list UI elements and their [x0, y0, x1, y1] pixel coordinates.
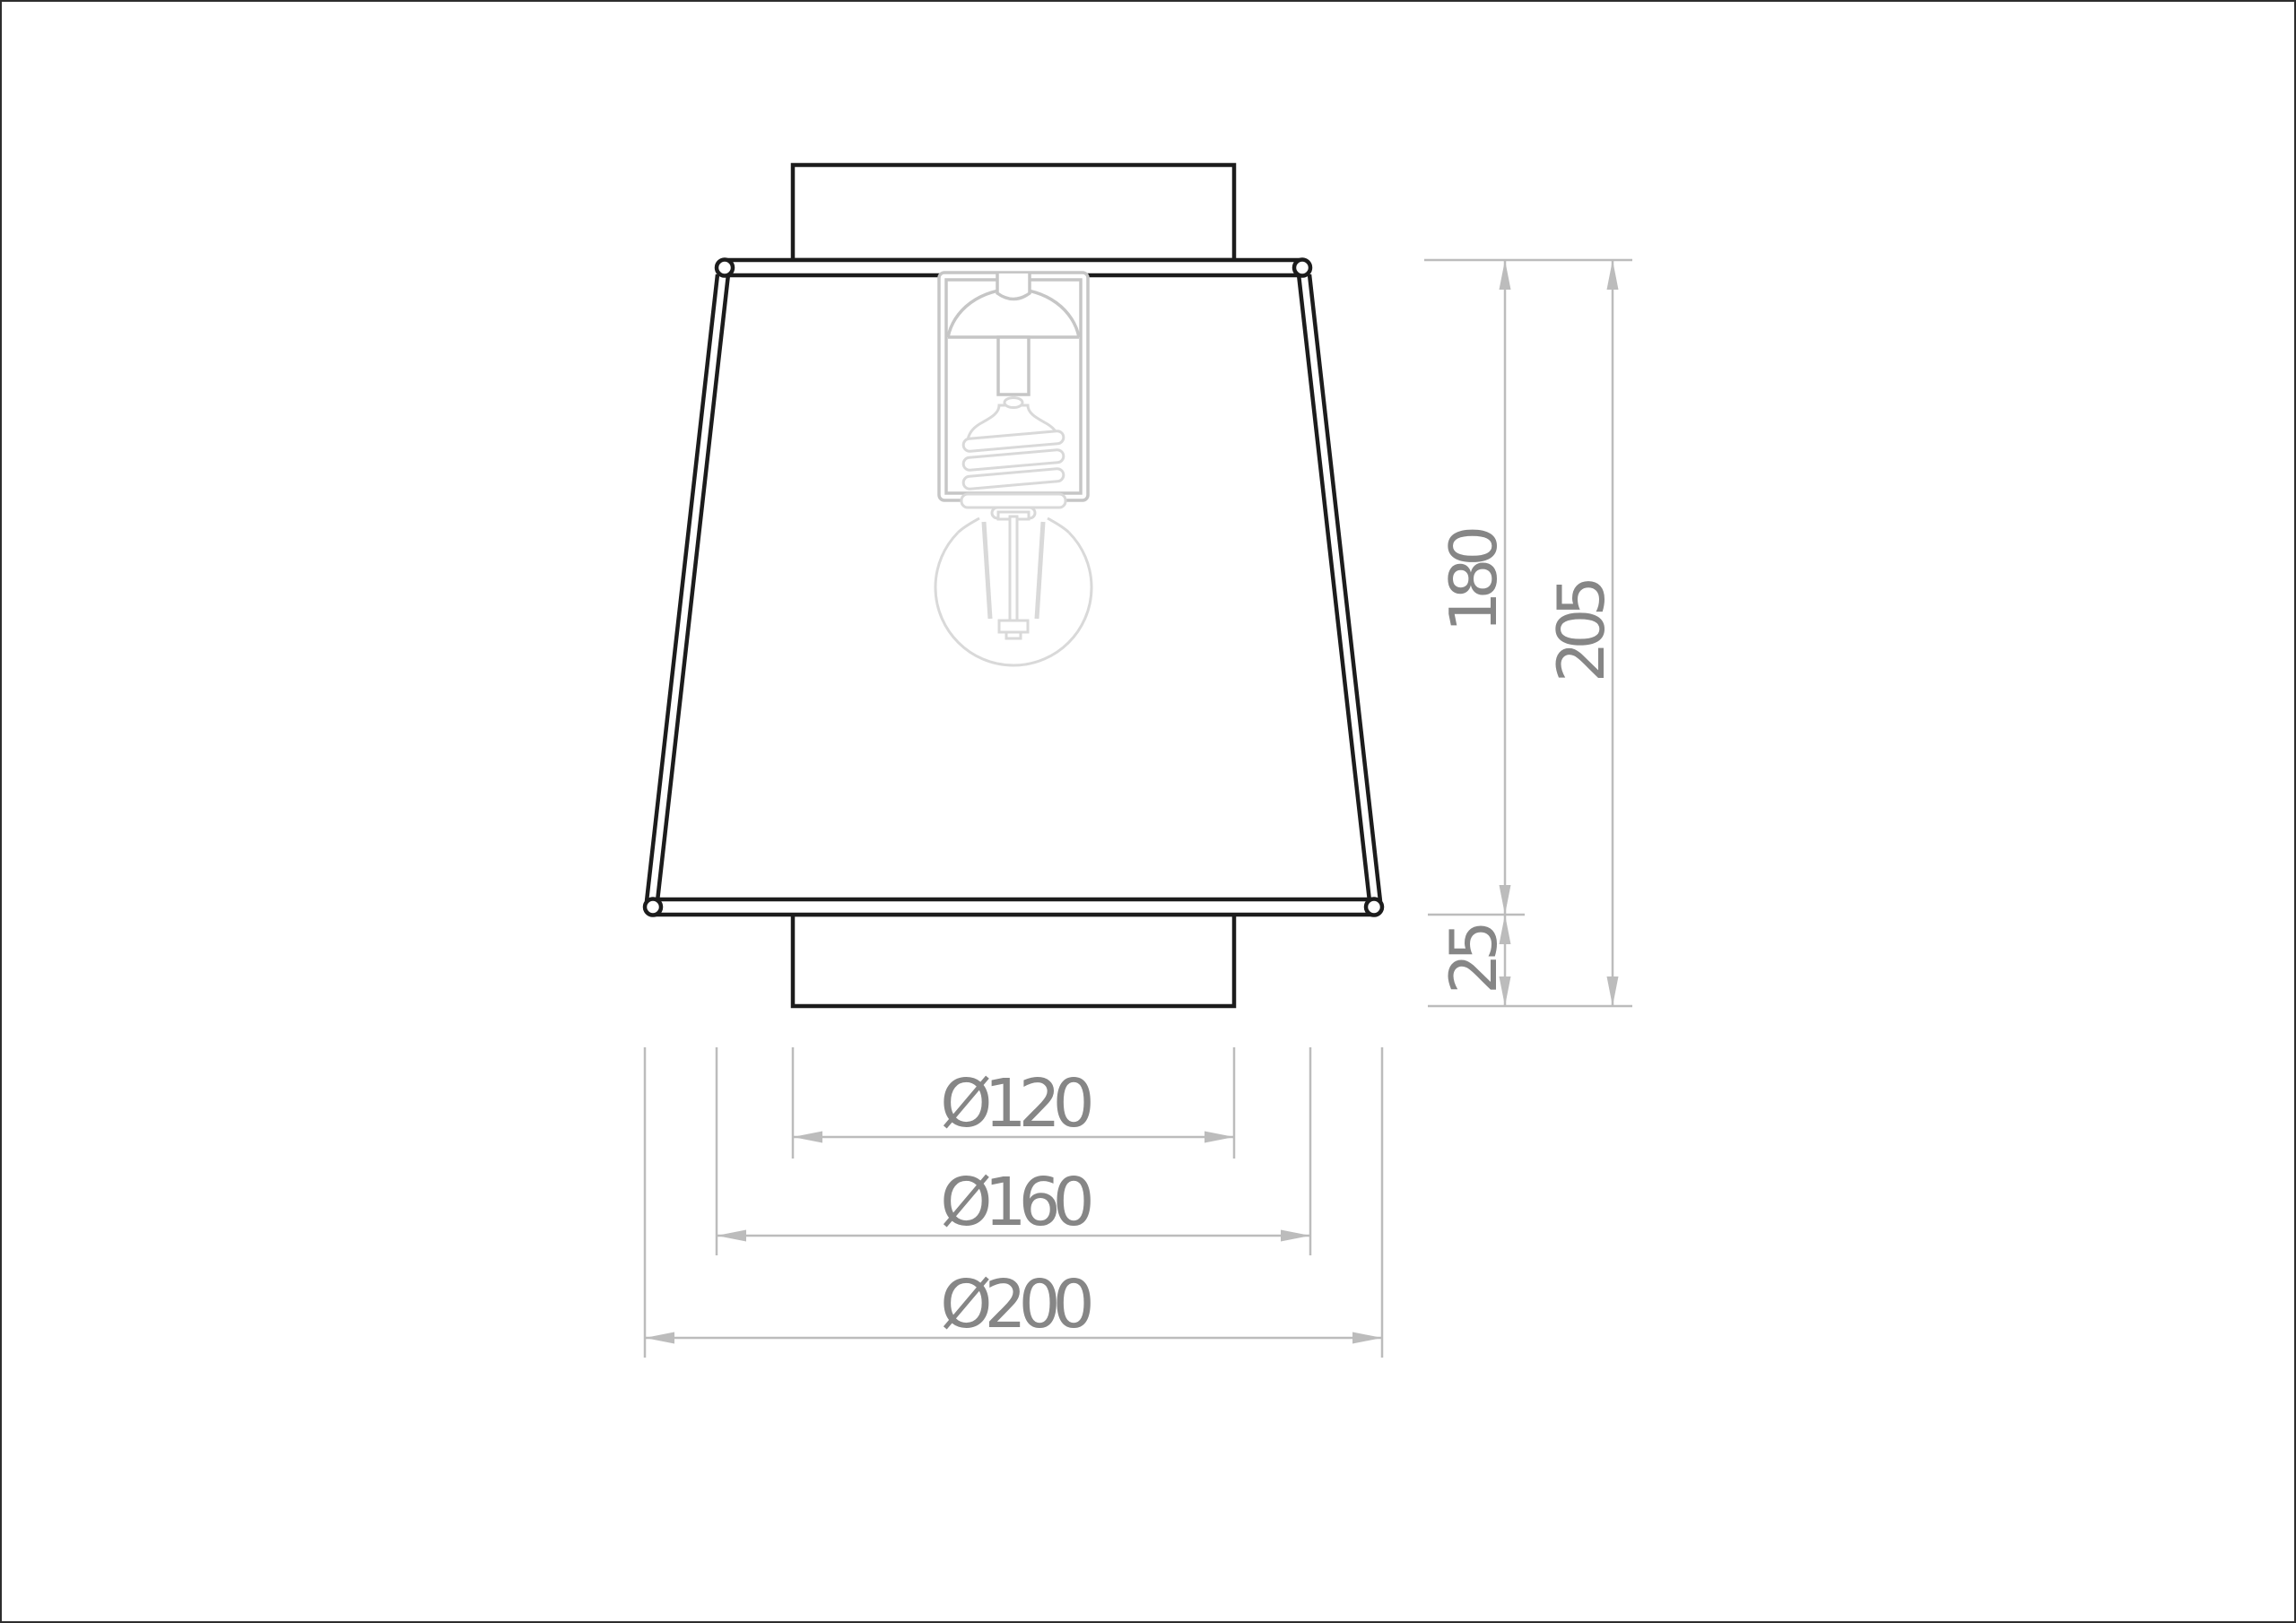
arrow-up	[1607, 260, 1619, 290]
top-canopy	[793, 165, 1234, 260]
dim-label-180: 180	[1436, 529, 1511, 633]
dim-label-25: 25	[1436, 925, 1511, 994]
technical-drawing-canvas: 180 205 25 Ø120 Ø160 Ø200	[0, 0, 2296, 1623]
shade-right-side-outer	[1309, 274, 1380, 901]
arrow-right	[1205, 1132, 1234, 1143]
arrow-right	[1352, 1332, 1382, 1344]
dim-label-d120: Ø120	[940, 1065, 1091, 1142]
rim-ball-top-left	[717, 260, 733, 276]
bottom-canopy	[793, 915, 1234, 1006]
shade-right-side-inner	[1299, 274, 1370, 901]
rim-ball-top-right	[1294, 260, 1310, 276]
filament-base-tab	[1006, 632, 1021, 638]
rim-ball-bottom-left	[645, 899, 661, 916]
arrow-down	[1607, 976, 1619, 1006]
filament-base-box	[999, 621, 1028, 632]
bulb-neck-right	[1048, 518, 1069, 533]
arrow-right	[1281, 1230, 1310, 1242]
drawing-page: 180 205 25 Ø120 Ø160 Ø200	[0, 0, 2296, 1623]
shade-left-side-outer	[647, 274, 717, 901]
bulb-neck-left	[958, 518, 979, 533]
bulb-base-collar	[961, 494, 1065, 508]
arrow-left	[793, 1132, 822, 1143]
arrow-down	[1500, 885, 1511, 915]
socket-stem	[998, 337, 1029, 395]
dimension-arrows	[645, 260, 1619, 1344]
shade-bottom-rim	[653, 899, 1374, 915]
bulb-top-contact	[1004, 398, 1022, 408]
shade-left-side-inner	[657, 274, 728, 901]
dimension-lines	[645, 260, 1632, 1358]
arrow-left	[717, 1230, 746, 1242]
arrow-up	[1500, 260, 1511, 290]
dim-label-205: 205	[1544, 581, 1619, 683]
filament-support-left	[984, 522, 990, 619]
socket-screw-notch	[997, 273, 1030, 299]
filament-support-right	[1037, 522, 1043, 619]
rim-ball-bottom-right	[1366, 899, 1382, 916]
arrow-left	[645, 1332, 674, 1344]
dim-label-d200: Ø200	[940, 1266, 1091, 1343]
dim-label-d160: Ø160	[940, 1164, 1091, 1241]
filament-center-rod	[1010, 516, 1017, 622]
